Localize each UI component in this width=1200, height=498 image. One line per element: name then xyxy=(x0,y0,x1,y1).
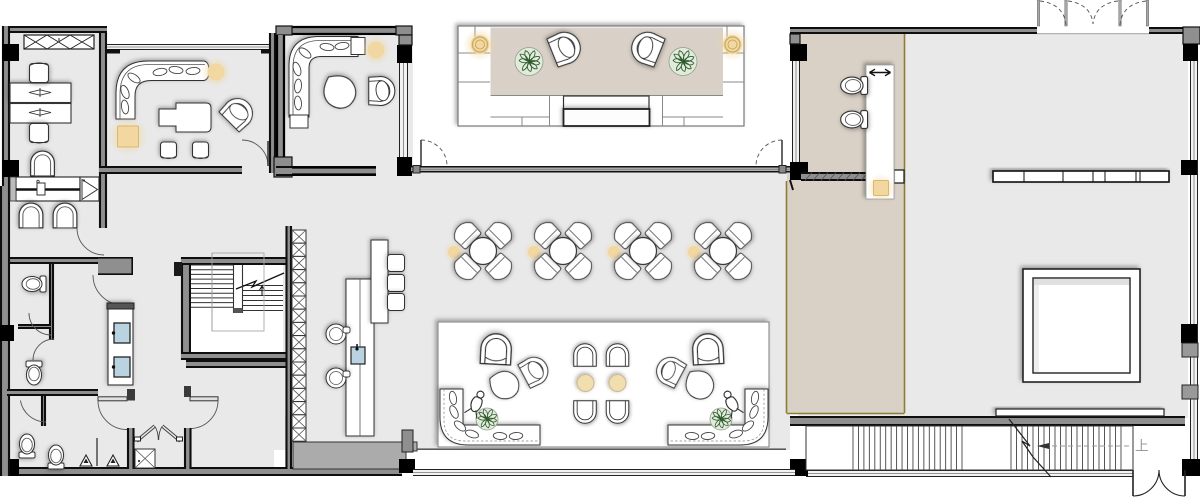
svg-text:上: 上 xyxy=(1135,439,1149,454)
